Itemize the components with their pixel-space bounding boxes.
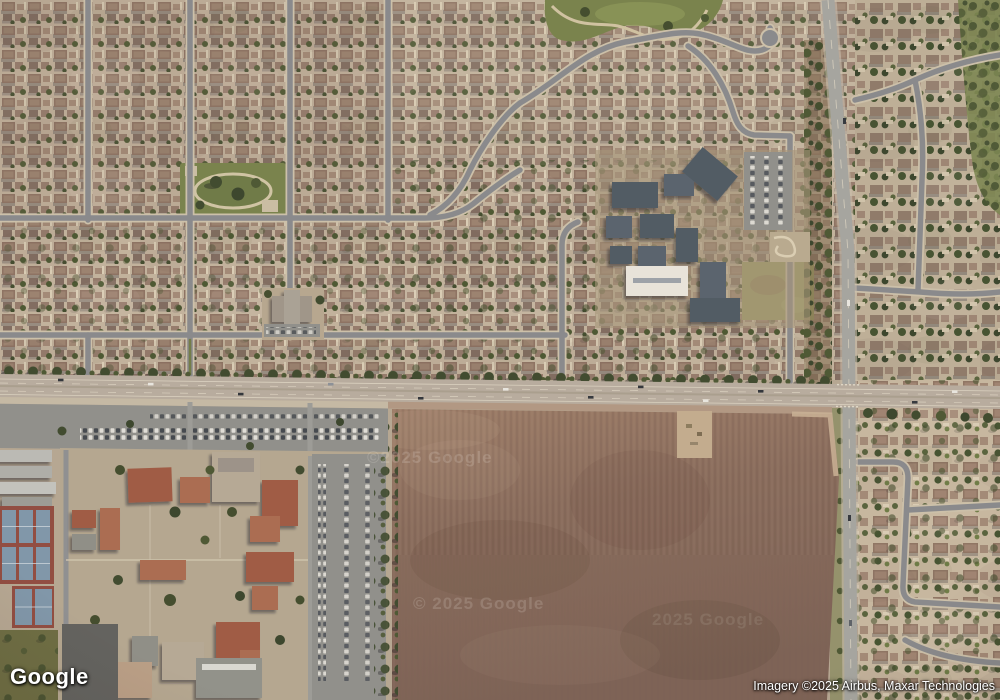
google-logo[interactable]: Google xyxy=(10,664,89,690)
attribution-text: Imagery ©2025 Airbus, Maxar Technologies xyxy=(753,679,995,693)
map-canvas[interactable] xyxy=(0,0,1000,700)
satellite-imagery xyxy=(0,0,1000,700)
map-viewport: ©2025 Google © 2025 Google 2025 Google G… xyxy=(0,0,1000,700)
